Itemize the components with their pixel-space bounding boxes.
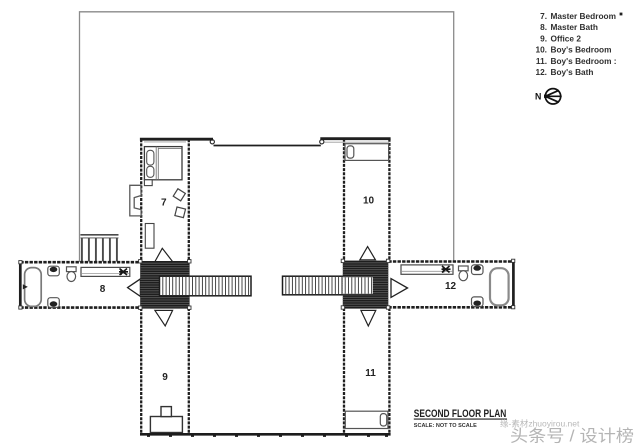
svg-text:7.: 7. [540, 11, 547, 21]
svg-text:8.: 8. [540, 22, 547, 32]
svg-text:12.: 12. [535, 67, 547, 77]
svg-text:Master Bedroom: Master Bedroom [551, 11, 616, 21]
svg-text:11.: 11. [536, 56, 547, 66]
svg-text:SCALE: NOT TO SCALE: SCALE: NOT TO SCALE [414, 423, 477, 429]
svg-text:Boy's Bath: Boy's Bath [551, 67, 594, 77]
svg-text:7: 7 [161, 198, 167, 209]
svg-text:9: 9 [162, 372, 168, 383]
svg-text:Boy's Bedroom: Boy's Bedroom [551, 45, 612, 55]
svg-text:N: N [535, 92, 541, 102]
svg-text:10: 10 [363, 196, 375, 207]
svg-text:10.: 10. [535, 45, 547, 55]
svg-text:Boy's Bedroom :: Boy's Bedroom : [551, 56, 617, 66]
svg-text:8: 8 [100, 284, 106, 295]
svg-text:Office 2: Office 2 [551, 33, 582, 43]
svg-text:12: 12 [445, 281, 457, 292]
svg-text:Master Bath: Master Bath [551, 22, 599, 32]
svg-text:11: 11 [365, 368, 376, 379]
svg-text:SECOND FLOOR PLAN: SECOND FLOOR PLAN [414, 408, 507, 420]
svg-text:9.: 9. [540, 33, 547, 43]
svg-text:头条号 / 设计榜: 头条号 / 设计榜 [510, 427, 634, 446]
